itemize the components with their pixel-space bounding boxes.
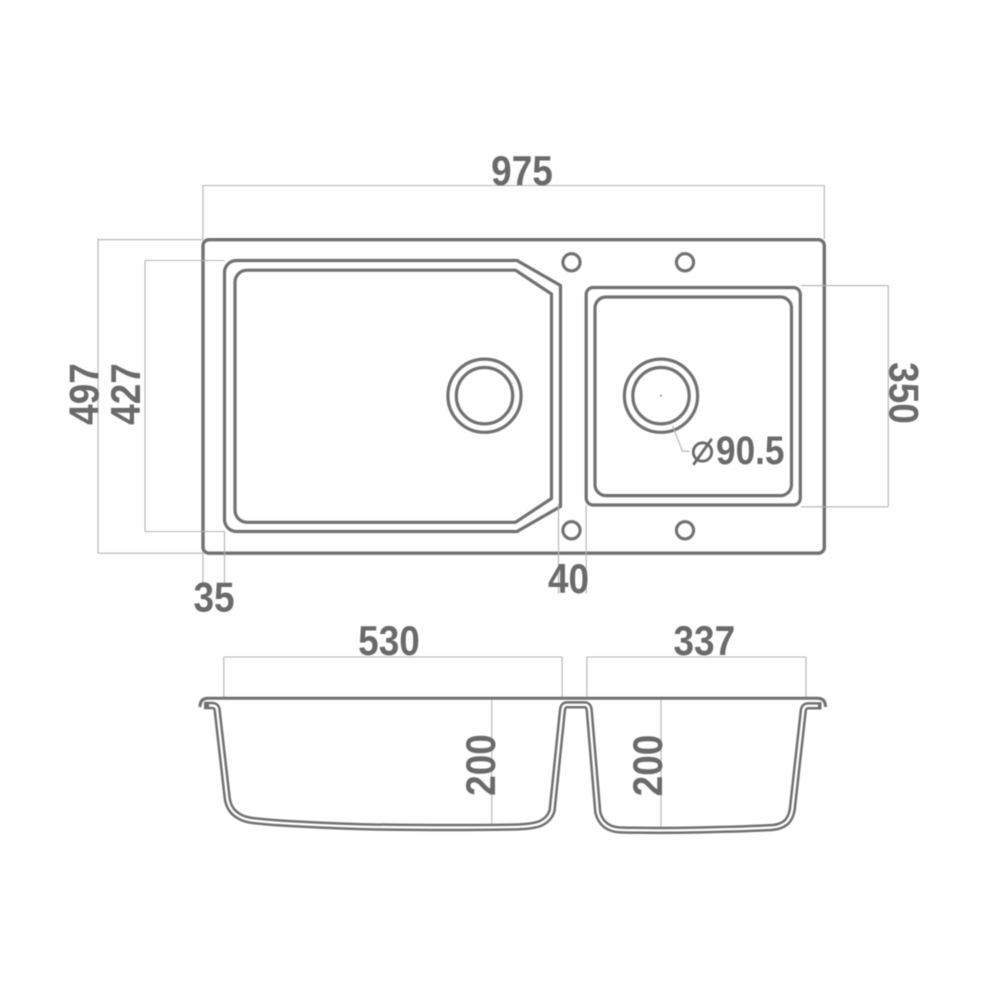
svg-text:337: 337 [673,618,735,665]
svg-text:90.5: 90.5 [716,428,784,473]
svg-text:427: 427 [103,363,150,425]
svg-text:200: 200 [625,735,672,797]
svg-text:497: 497 [61,363,108,425]
svg-text:200: 200 [458,734,505,796]
svg-text:975: 975 [491,148,553,195]
svg-text:350: 350 [880,362,927,424]
svg-text:40: 40 [548,556,589,603]
svg-text:530: 530 [358,618,420,665]
svg-text:35: 35 [193,574,234,621]
